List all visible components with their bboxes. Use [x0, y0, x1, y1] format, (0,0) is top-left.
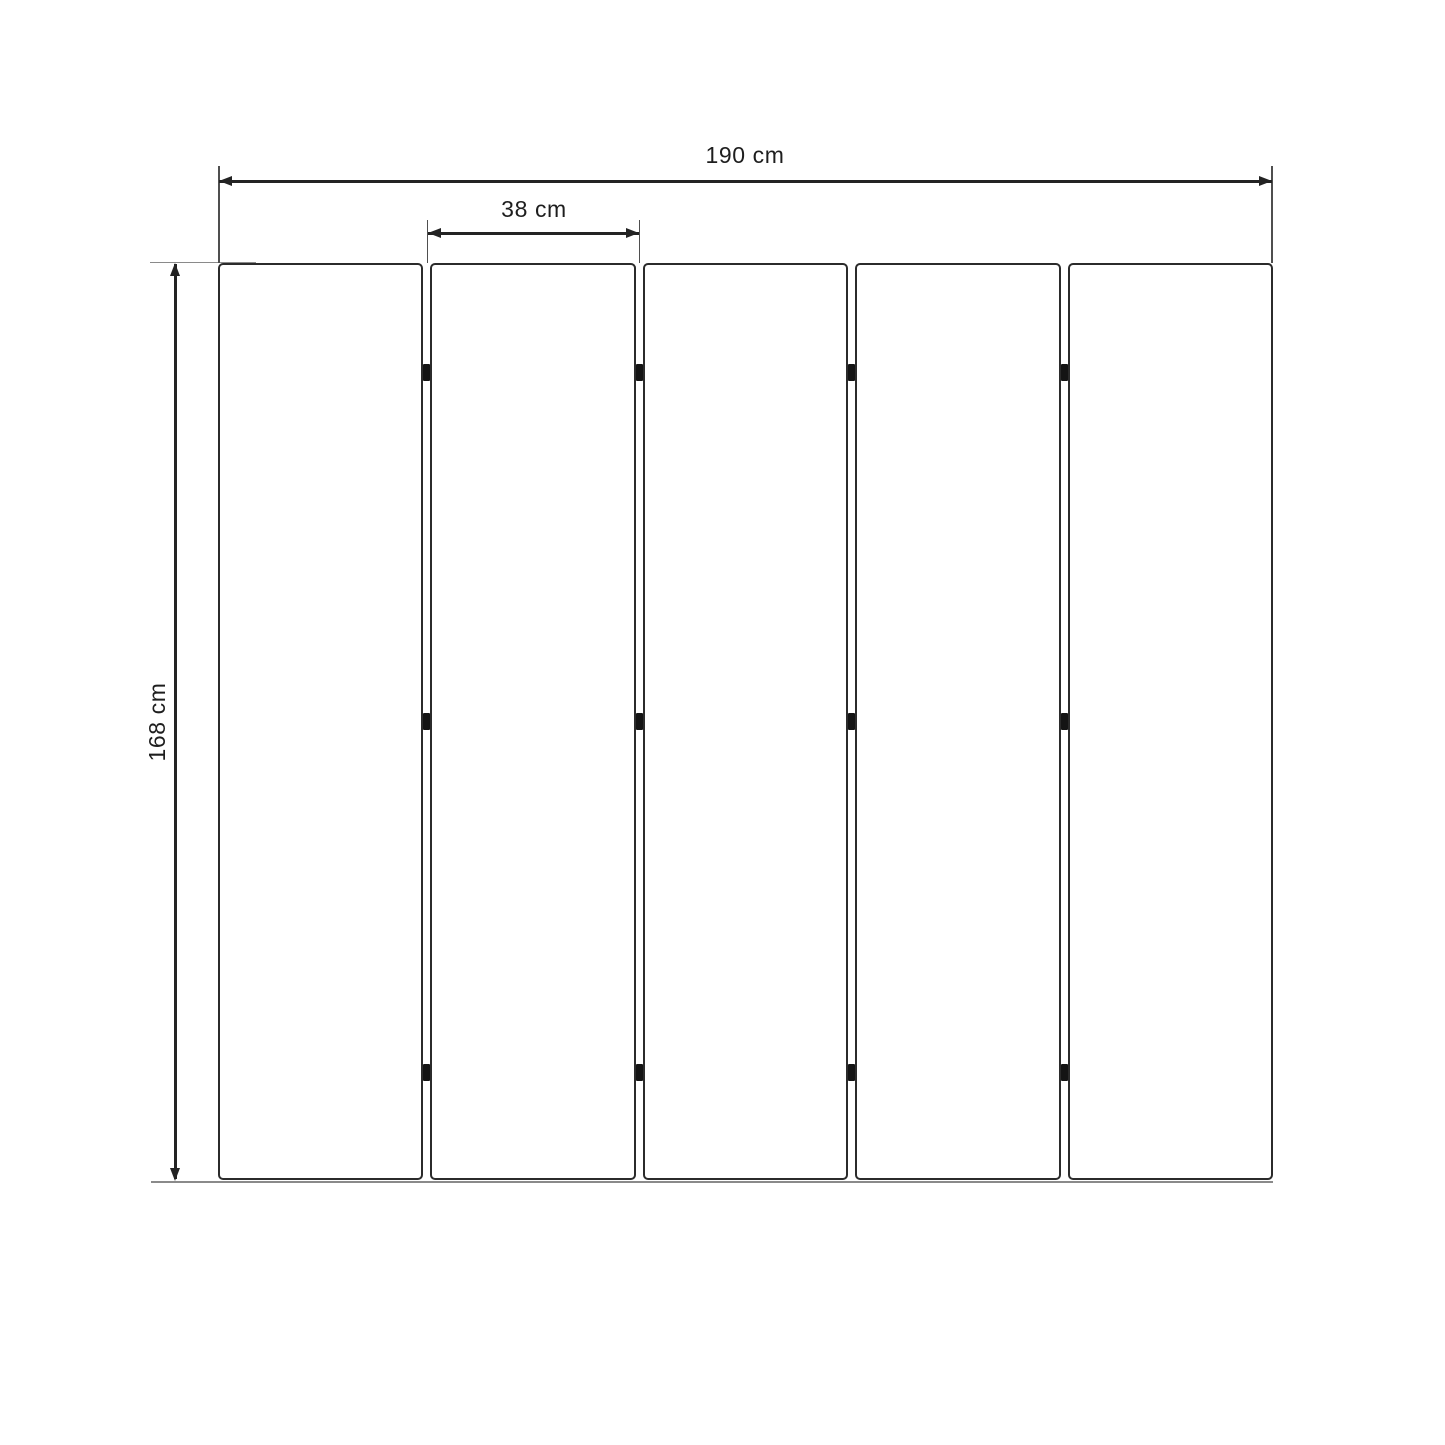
panel-width-dimension-line [428, 232, 639, 235]
arrowhead-right-icon [626, 228, 639, 238]
hinge [848, 1064, 855, 1081]
hinge [423, 713, 430, 730]
hinge [1061, 364, 1068, 381]
total-width-dimension-line [219, 180, 1272, 183]
total-width-dimension-label: 190 cm [645, 142, 845, 169]
panel [218, 263, 423, 1180]
panel [1068, 263, 1273, 1180]
panel [430, 263, 635, 1180]
arrowhead-left-icon [428, 228, 441, 238]
panel [855, 263, 1060, 1180]
arrowhead-left-icon [219, 176, 232, 186]
panel-width-extension-line-left [427, 220, 429, 263]
arrowhead-down-icon [170, 1168, 180, 1181]
hinge [636, 713, 643, 730]
hinge [636, 1064, 643, 1081]
hinge [423, 364, 430, 381]
hinge [848, 364, 855, 381]
height-dimension-label: 168 cm [143, 622, 171, 822]
hinge [1061, 713, 1068, 730]
height-dimension-line [174, 264, 177, 1179]
hinge [848, 713, 855, 730]
panel [643, 263, 848, 1180]
hinge [636, 364, 643, 381]
panel-width-dimension-label: 38 cm [434, 196, 634, 223]
arrowhead-up-icon [170, 263, 180, 276]
arrowhead-right-icon [1259, 176, 1272, 186]
height-extension-line-bottom [151, 1181, 1273, 1183]
panel-dimension-diagram: 190 cm 38 cm 168 cm [0, 0, 1445, 1445]
panel-row [218, 263, 1273, 1180]
hinge [423, 1064, 430, 1081]
panel-width-extension-line-right [639, 220, 641, 263]
hinge [1061, 1064, 1068, 1081]
